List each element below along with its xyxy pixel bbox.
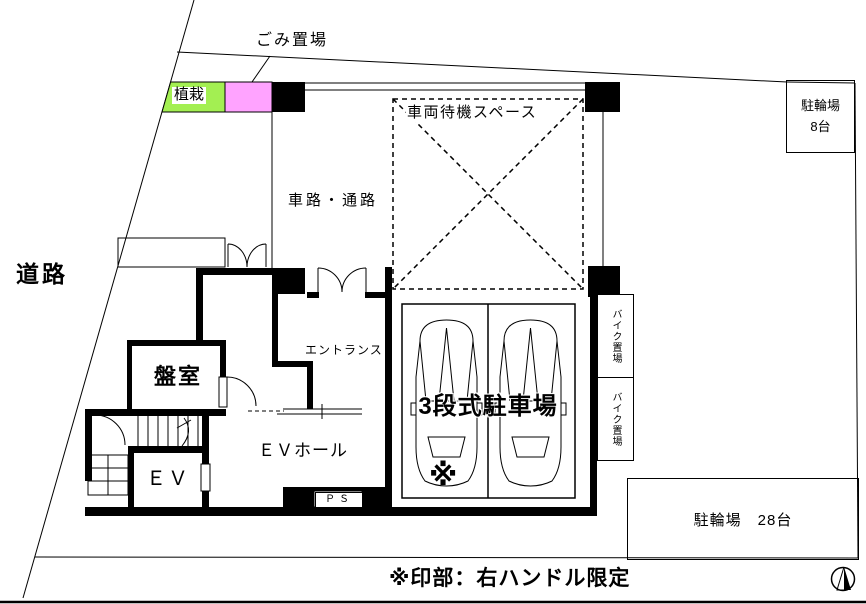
entrance-label: エントランス (305, 344, 383, 357)
bottom-note: ※印部：右ハンドル限定 (389, 567, 630, 590)
bicycle-parking-8-name: 駐輪場 (801, 96, 840, 117)
road-label: 道路 (16, 262, 68, 287)
canopy-outline (118, 238, 225, 267)
elevator-label: ＥＶ (146, 468, 190, 490)
driveway-label: 車路・通路 (288, 193, 378, 210)
bike-parking-lower-box: バイク置場 (597, 377, 634, 461)
planting-label: 植栽 (172, 87, 206, 104)
stair-treads (138, 415, 198, 446)
bike-parking-upper-box: バイク置場 (597, 294, 634, 378)
switchback-stair (88, 455, 128, 495)
bicycle-parking-8-capacity: 8台 (810, 117, 830, 138)
garbage-area-label: ごみ置場 (256, 32, 328, 50)
triple-parking-label: 3段式駐車場 (400, 394, 576, 420)
asterisk-mark: ※ (429, 461, 457, 493)
bicycle-parking-28-box: 駐輪場 28台 (627, 478, 859, 560)
column-top-mid (272, 82, 305, 112)
panel-room-label: 盤室 (154, 365, 202, 389)
vehicle-waiting-space-label: 車両待機スペース (406, 105, 538, 122)
garbage-leader-line (252, 56, 270, 82)
north-compass-icon (832, 567, 855, 591)
vehicle-waiting-space-outline (393, 99, 583, 289)
sliding-door (248, 404, 362, 419)
bicycle-parking-28-label: 駐輪場 28台 (694, 509, 793, 530)
ev-hall-label: ＥＶホール (258, 442, 348, 461)
pipe-space-label: ＰＳ (315, 492, 363, 508)
bicycle-parking-8-box: 駐輪場 8台 (786, 80, 855, 153)
garbage-box-area (225, 82, 272, 112)
site-plan: 道路 ごみ置場 植栽 車路・通路 車両待機スペース 駐輪場 8台 バイク置場 バ… (0, 0, 866, 604)
